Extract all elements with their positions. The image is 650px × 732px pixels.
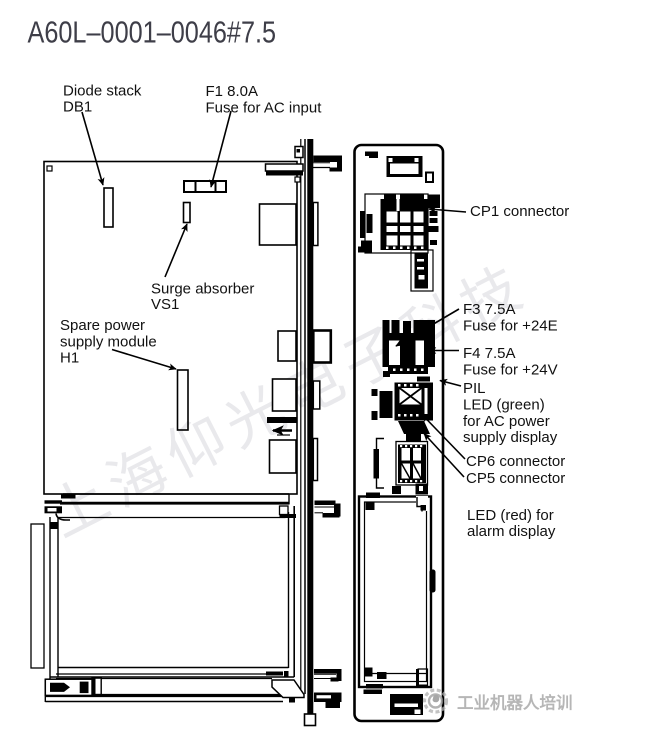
svg-text:Diode stack: Diode stack: [63, 83, 142, 100]
svg-text:CP6 connector: CP6 connector: [466, 453, 565, 470]
svg-text:Surge absorber: Surge absorber: [151, 281, 254, 298]
svg-text:supply display: supply display: [463, 429, 558, 446]
svg-text:LED (red) for: LED (red) for: [467, 507, 554, 524]
svg-text:Fuse for +24E: Fuse for +24E: [463, 318, 558, 335]
svg-text:DB1: DB1: [63, 99, 92, 116]
svg-text:Fuse for +24V: Fuse for +24V: [463, 362, 558, 379]
svg-text:VS1: VS1: [151, 296, 179, 313]
svg-text:Fuse for AC input: Fuse for AC input: [206, 100, 323, 117]
svg-text:CP5 connector: CP5 connector: [466, 470, 565, 487]
svg-text:supply module: supply module: [60, 334, 157, 351]
svg-text:F1 8.0A: F1 8.0A: [206, 83, 259, 100]
svg-text:LED (green): LED (green): [463, 397, 545, 414]
svg-text:alarm display: alarm display: [467, 523, 556, 540]
svg-text:PIL: PIL: [463, 380, 486, 397]
svg-text:Spare power: Spare power: [60, 317, 145, 334]
svg-text:工业机器人培训: 工业机器人培训: [457, 693, 573, 713]
svg-text:for AC power: for AC power: [463, 413, 550, 430]
svg-text:H1: H1: [60, 350, 79, 367]
svg-text:CP1 connector: CP1 connector: [470, 203, 569, 220]
svg-text:F3 7.5A: F3 7.5A: [463, 301, 516, 318]
svg-text:A60L–0001–0046#7.5: A60L–0001–0046#7.5: [28, 14, 277, 49]
svg-text:F4 7.5A: F4 7.5A: [463, 345, 516, 362]
